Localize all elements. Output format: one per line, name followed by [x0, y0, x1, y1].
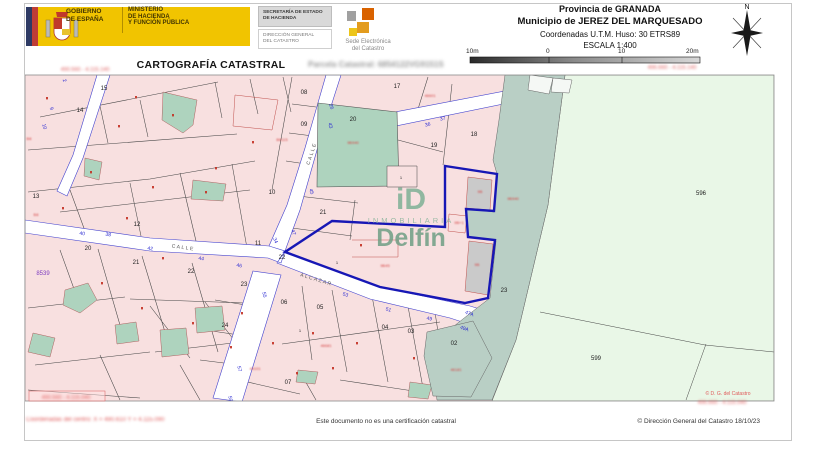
sede-logo-square-orange — [362, 8, 374, 20]
center-coordinates-redacted: Coordenadas del centro: X = 490.610 Y = … — [26, 417, 164, 423]
sede-electronica-label: Sede Electrónica del Catastro — [330, 39, 406, 52]
map-title-block: Provincia de GRANADA Municipio de JEREZ … — [478, 4, 742, 50]
scalebar-label-10: 10 — [618, 48, 625, 55]
ministerio-label: MINISTERIO DE HACIENDA Y FUNCIÓN PÚBLICA — [128, 7, 189, 27]
scale-label: ESCALA 1:400 — [478, 41, 742, 50]
flag-stripe-red — [32, 7, 38, 46]
sede-logo-square-yellow — [349, 28, 357, 36]
secretaria-box: SECRETARÍA DE ESTADO DE HACIENDA — [258, 6, 332, 27]
gobierno-label: GOBIERNO DE ESPAÑA — [66, 8, 103, 23]
scalebar-label-20m: 20m — [686, 48, 699, 55]
utm-coordinates-label: Coordenadas U.T.M. Huso: 30 ETRS89 — [478, 30, 742, 39]
cartografia-catastral-title: CARTOGRAFÍA CATASTRAL — [118, 59, 304, 71]
municipio-title: Municipio de JEREZ DEL MARQUESADO — [478, 16, 742, 27]
scalebar-label-0: 0 — [546, 48, 550, 55]
footer-disclaimer: Este documento no es una certificación c… — [286, 418, 486, 425]
band-divider — [122, 7, 123, 33]
scalebar-label-10m-left: 10m — [466, 48, 479, 55]
direccion-box: DIRECCIÓN GENERAL DEL CATASTRO — [258, 29, 332, 49]
cadastral-document: 1514131211100809171819202120212222232423… — [0, 0, 816, 459]
sede-logo-square-amber — [357, 22, 369, 33]
footer-copyright: © Dirección General del Catastro 18/10/2… — [560, 418, 760, 425]
sede-logo-square-gray — [347, 11, 356, 21]
parcela-catastral-redacted: Parcela Catastral: 6854122VG9151S — [308, 60, 444, 69]
provincia-title: Provincia de GRANADA — [478, 4, 742, 14]
